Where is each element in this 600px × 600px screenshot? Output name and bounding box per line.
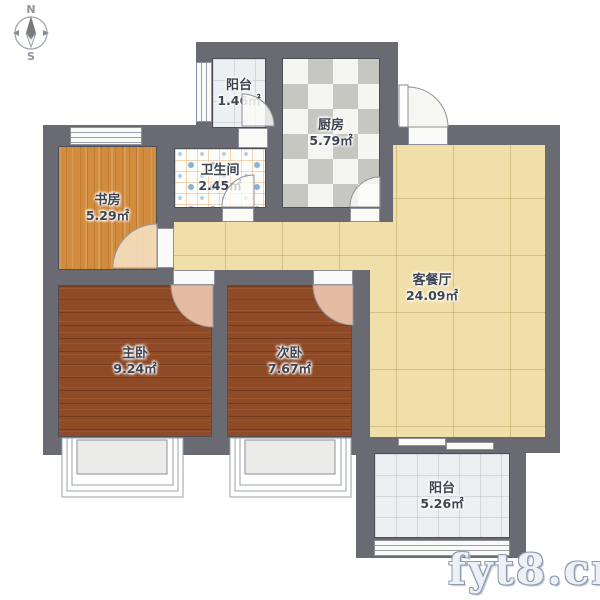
room-area: 24.09㎡ — [406, 288, 458, 303]
room-name: 书房 — [94, 193, 120, 208]
bathroom-door-opening — [222, 208, 254, 222]
room-balcony-bottom-label: 阳台 5.26㎡ — [375, 454, 509, 537]
room-living-dining-label: 客餐厅 24.09㎡ — [377, 272, 487, 304]
compass-south-label: S — [27, 50, 35, 62]
room-bathroom-floor: 卫生间 2.45㎡ — [174, 148, 266, 208]
room-area: 7.67㎡ — [268, 361, 311, 376]
room-area: 2.45㎡ — [198, 178, 241, 193]
balcony-sliding-door-panel-right — [446, 442, 494, 450]
study-door-opening — [157, 228, 174, 268]
compass: N S — [5, 2, 57, 62]
room-study-floor: 书房 5.29㎡ — [58, 146, 157, 270]
room-kitchen-label: 厨房 5.79㎡ — [283, 59, 379, 207]
room-name: 次卧 — [276, 346, 302, 361]
watermark: fyt8.cn — [448, 545, 598, 594]
room-name: 厨房 — [318, 118, 344, 133]
room-name: 主卧 — [122, 346, 148, 361]
room-name: 阳台 — [226, 78, 252, 93]
room-study-label: 书房 5.29㎡ — [59, 147, 156, 269]
balcony-top-door-opening — [238, 128, 268, 148]
room-area: 5.79㎡ — [309, 133, 352, 148]
balcony-sliding-door-panel-left — [398, 438, 446, 446]
master-bedroom-door-opening — [173, 270, 215, 285]
room-name: 卫生间 — [200, 163, 239, 178]
room-balcony-bottom-floor: 阳台 5.26㎡ — [374, 453, 510, 538]
entry-door-opening — [408, 125, 448, 145]
room-name: 阳台 — [429, 481, 455, 496]
room-balcony-top-label: 阳台 1.46㎡ — [213, 59, 265, 127]
compass-north-label: N — [26, 3, 35, 16]
room-area: 1.46㎡ — [217, 93, 260, 108]
balcony-top-side-window — [196, 62, 212, 122]
room-second-bedroom-floor: 次卧 7.67㎡ — [227, 285, 352, 437]
second-bedroom-door-opening — [313, 270, 353, 285]
entry-door-swing-arc — [408, 87, 448, 127]
kitchen-door-opening — [350, 208, 380, 222]
room-second-bedroom-label: 次卧 7.67㎡ — [228, 286, 351, 436]
room-balcony-top-floor: 阳台 1.46㎡ — [212, 58, 266, 128]
room-name: 客餐厅 — [412, 273, 451, 288]
room-master-bedroom-floor: 主卧 9.24㎡ — [58, 285, 212, 437]
room-kitchen-floor: 厨房 5.79㎡ — [282, 58, 380, 208]
room-area: 5.26㎡ — [420, 496, 463, 511]
entry-door-panel — [399, 85, 408, 127]
room-area: 9.24㎡ — [113, 361, 156, 376]
compass-east-arrow-icon — [43, 30, 49, 36]
room-area: 5.29㎡ — [86, 208, 129, 223]
floorplan-canvas: 阳台 1.46㎡ 厨房 5.79㎡ 卫生间 2.45㎡ 书房 5.29㎡ 客餐厅… — [0, 0, 600, 600]
study-top-window — [70, 127, 142, 145]
room-bathroom-label: 卫生间 2.45㎡ — [175, 149, 265, 207]
room-master-bedroom-label: 主卧 9.24㎡ — [59, 286, 211, 436]
compass-west-arrow-icon — [13, 30, 19, 36]
